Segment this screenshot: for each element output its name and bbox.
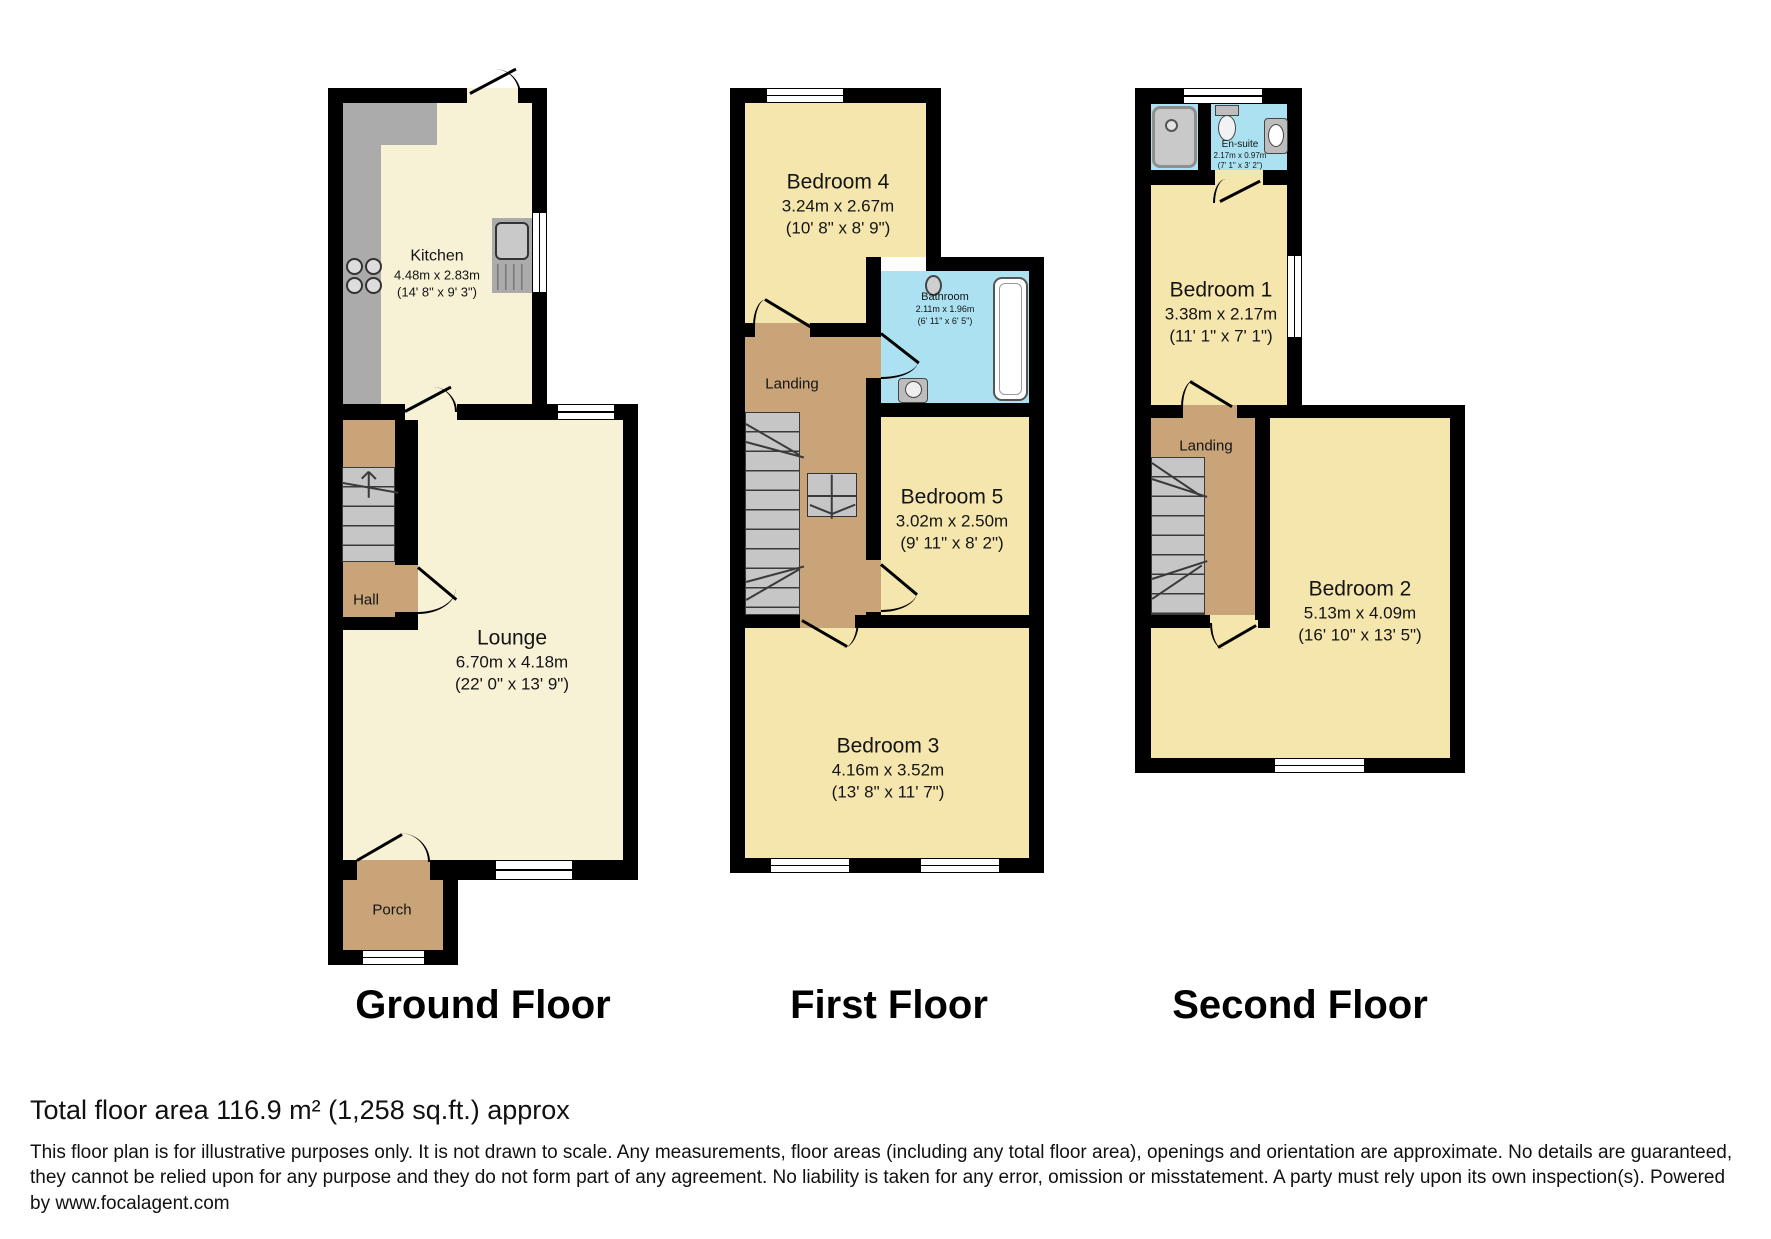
- kitchen-counter: [343, 103, 437, 145]
- room-dims-metric: 2.17m x 0.97m: [1214, 151, 1267, 161]
- room-name: Hall: [353, 590, 379, 610]
- room-dims-imperial: (16' 10" x 13' 5"): [1298, 625, 1421, 647]
- room-label-bedroom-1: Bedroom 1 3.38m x 2.17m (11' 1" x 7' 1"): [1165, 276, 1277, 347]
- wall: [328, 88, 467, 103]
- shower-drain: [1165, 119, 1178, 132]
- floor-title-ground: Ground Floor: [355, 983, 611, 1028]
- disclaimer-text: This floor plan is for illustrative purp…: [30, 1140, 1748, 1216]
- wall: [328, 617, 418, 630]
- room-label-hall: Hall: [353, 590, 379, 610]
- room-name: Bedroom 4: [787, 168, 890, 195]
- stair-line: [832, 504, 856, 515]
- room-dims-metric: 2.11m x 1.96m: [916, 304, 975, 316]
- shower-tray: [1152, 106, 1197, 168]
- wall: [328, 88, 343, 965]
- room-name: Kitchen: [410, 247, 463, 268]
- room-label-ensuite: En-suite 2.17m x 0.97m (7' 1" x 3' 2"): [1214, 138, 1267, 172]
- floor-title-first: First Floor: [790, 983, 988, 1028]
- bathtub-inner: [999, 283, 1022, 395]
- total-floor-area: Total floor area 116.9 m² (1,258 sq.ft.)…: [30, 1095, 570, 1126]
- staircase: [745, 412, 800, 615]
- floor-title-second: Second Floor: [1172, 983, 1428, 1028]
- door-gap: [866, 330, 881, 378]
- staircase: [1151, 457, 1205, 615]
- stair-line: [808, 495, 856, 497]
- wall: [1135, 405, 1183, 418]
- room-dims-metric: 3.02m x 2.50m: [896, 511, 1008, 533]
- wall: [1302, 405, 1465, 418]
- room-dims-metric: 3.38m x 2.17m: [1165, 304, 1277, 326]
- room-lounge: [343, 630, 418, 860]
- sink-drainer: [497, 264, 529, 290]
- room-label-landing-first: Landing: [765, 374, 818, 394]
- wall: [926, 257, 1044, 271]
- wall: [328, 860, 357, 880]
- room-dims-imperial: (9' 11" x 8' 2"): [900, 533, 1003, 555]
- room-dims-metric: 4.16m x 3.52m: [832, 760, 944, 782]
- wall: [1237, 405, 1302, 418]
- door-gap: [866, 560, 881, 612]
- window: [1287, 255, 1302, 338]
- door-swing-arc: [495, 69, 521, 95]
- wall: [1258, 615, 1270, 628]
- wall: [1029, 257, 1044, 873]
- window: [1183, 88, 1263, 104]
- room-dims-imperial: (13' 8" x 11' 7"): [832, 782, 945, 804]
- room-dims-imperial: (14' 8" x 9' 3"): [397, 284, 477, 301]
- window: [770, 858, 850, 873]
- window: [766, 88, 844, 103]
- room-bedroom-2: [1151, 628, 1270, 758]
- stair-line: [368, 472, 370, 498]
- hob-burner: [346, 277, 363, 294]
- door-gap: [357, 860, 430, 880]
- room-dims-imperial: (11' 1" x 7' 1"): [1169, 326, 1272, 348]
- hob-burner: [346, 258, 363, 275]
- stair-line: [810, 504, 834, 515]
- kitchen-sink: [495, 222, 529, 260]
- room-label-lounge: Lounge 6.70m x 4.18m (22' 0" x 13' 9"): [455, 624, 569, 695]
- stair-steps: [807, 473, 857, 517]
- room-label-bedroom-5: Bedroom 5 3.02m x 2.50m (9' 11" x 8' 2"): [896, 483, 1008, 554]
- room-name: Landing: [765, 374, 818, 394]
- room-dims-imperial: (22' 0" x 13' 9"): [455, 674, 569, 696]
- wall: [1198, 104, 1211, 170]
- wall: [1450, 418, 1465, 773]
- stair-line: [746, 441, 804, 458]
- wall: [855, 615, 1044, 628]
- stair-line: [343, 482, 398, 493]
- room-dims-imperial: (10' 8" x 8' 9"): [786, 218, 891, 240]
- room-name: Lounge: [477, 624, 547, 651]
- room-dims-metric: 3.24m x 2.67m: [782, 196, 894, 218]
- room-label-bathroom: Bathroom 2.11m x 1.96m (6' 11" x 6' 5"): [916, 290, 975, 328]
- window: [920, 858, 1000, 873]
- room-name: Bedroom 5: [901, 483, 1004, 510]
- room-name: Bathroom: [921, 290, 969, 304]
- wall: [730, 323, 755, 337]
- room-label-porch: Porch: [372, 900, 411, 920]
- wall: [730, 88, 745, 873]
- wall: [1255, 418, 1270, 620]
- room-name: Bedroom 2: [1309, 575, 1412, 602]
- stair-line: [746, 565, 804, 582]
- room-label-kitchen: Kitchen 4.48m x 2.83m (14' 8" x 9' 3"): [394, 247, 480, 302]
- wall: [866, 403, 1044, 417]
- wall: [1263, 170, 1302, 185]
- basin-vanity: [1264, 118, 1288, 154]
- room-name: Bedroom 1: [1170, 276, 1273, 303]
- hob-burner: [365, 258, 382, 275]
- window: [495, 860, 573, 880]
- hob-burner: [365, 277, 382, 294]
- room-label-bedroom-3: Bedroom 3 4.16m x 3.52m (13' 8" x 11' 7"…: [832, 732, 945, 803]
- stair-line: [1152, 560, 1208, 579]
- room-name: Landing: [1179, 436, 1232, 456]
- wall: [1135, 615, 1210, 628]
- room-dims-metric: 5.13m x 4.09m: [1304, 603, 1416, 625]
- toilet-bowl: [905, 381, 922, 398]
- room-dims-imperial: (7' 1" x 3' 2"): [1218, 162, 1263, 172]
- room-label-bedroom-2: Bedroom 2 5.13m x 4.09m (16' 10" x 13' 5…: [1298, 575, 1421, 646]
- window: [1274, 758, 1365, 773]
- window: [362, 950, 425, 965]
- wall: [866, 257, 881, 330]
- room-label-landing-second: Landing: [1179, 436, 1232, 456]
- bathtub: [993, 277, 1028, 401]
- room-name: Porch: [372, 900, 411, 920]
- room-dims-metric: 6.70m x 4.18m: [456, 652, 568, 674]
- room-name: Bedroom 3: [837, 732, 940, 759]
- stair-line: [746, 423, 800, 455]
- wall: [623, 404, 638, 880]
- window: [532, 212, 547, 293]
- toilet-bowl: [1218, 115, 1236, 141]
- wall: [1135, 88, 1151, 773]
- room-dims-metric: 4.48m x 2.83m: [394, 268, 480, 285]
- wall: [745, 615, 800, 628]
- wall: [926, 88, 941, 271]
- room-dims-imperial: (6' 11" x 6' 5"): [918, 316, 973, 328]
- room-name: En-suite: [1222, 138, 1259, 151]
- door-gap: [395, 565, 418, 612]
- wall: [395, 420, 418, 565]
- window: [557, 404, 615, 420]
- room-label-bedroom-4: Bedroom 4 3.24m x 2.67m (10' 8" x 8' 9"): [782, 168, 894, 239]
- wall: [328, 404, 405, 420]
- basin: [1268, 124, 1284, 147]
- wall: [1135, 170, 1215, 185]
- staircase: [342, 467, 395, 562]
- floorplan-canvas: Kitchen 4.48m x 2.83m (14' 8" x 9' 3") H…: [0, 0, 1771, 1239]
